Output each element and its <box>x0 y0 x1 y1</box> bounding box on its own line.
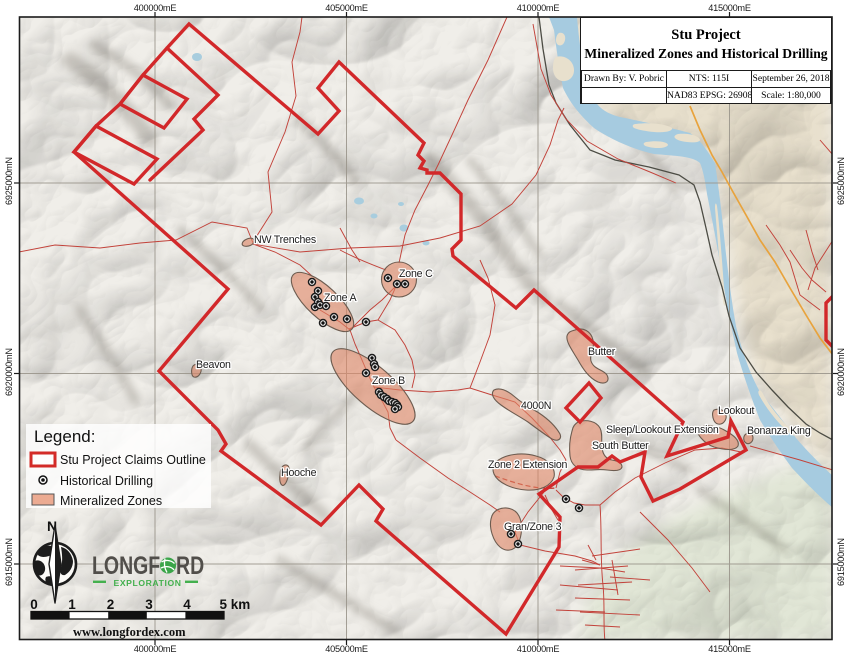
svg-text:LONGF: LONGF <box>92 552 160 580</box>
svg-text:4: 4 <box>183 597 191 612</box>
svg-text:2: 2 <box>107 597 115 612</box>
svg-text:3: 3 <box>145 597 153 612</box>
svg-text:0: 0 <box>30 597 38 612</box>
svg-text:EXPLORATION: EXPLORATION <box>114 578 182 588</box>
svg-text:1: 1 <box>68 597 76 612</box>
svg-text:RD: RD <box>176 552 204 580</box>
svg-text:www.longfordex.com: www.longfordex.com <box>73 625 186 639</box>
svg-text:5 km: 5 km <box>220 597 251 612</box>
